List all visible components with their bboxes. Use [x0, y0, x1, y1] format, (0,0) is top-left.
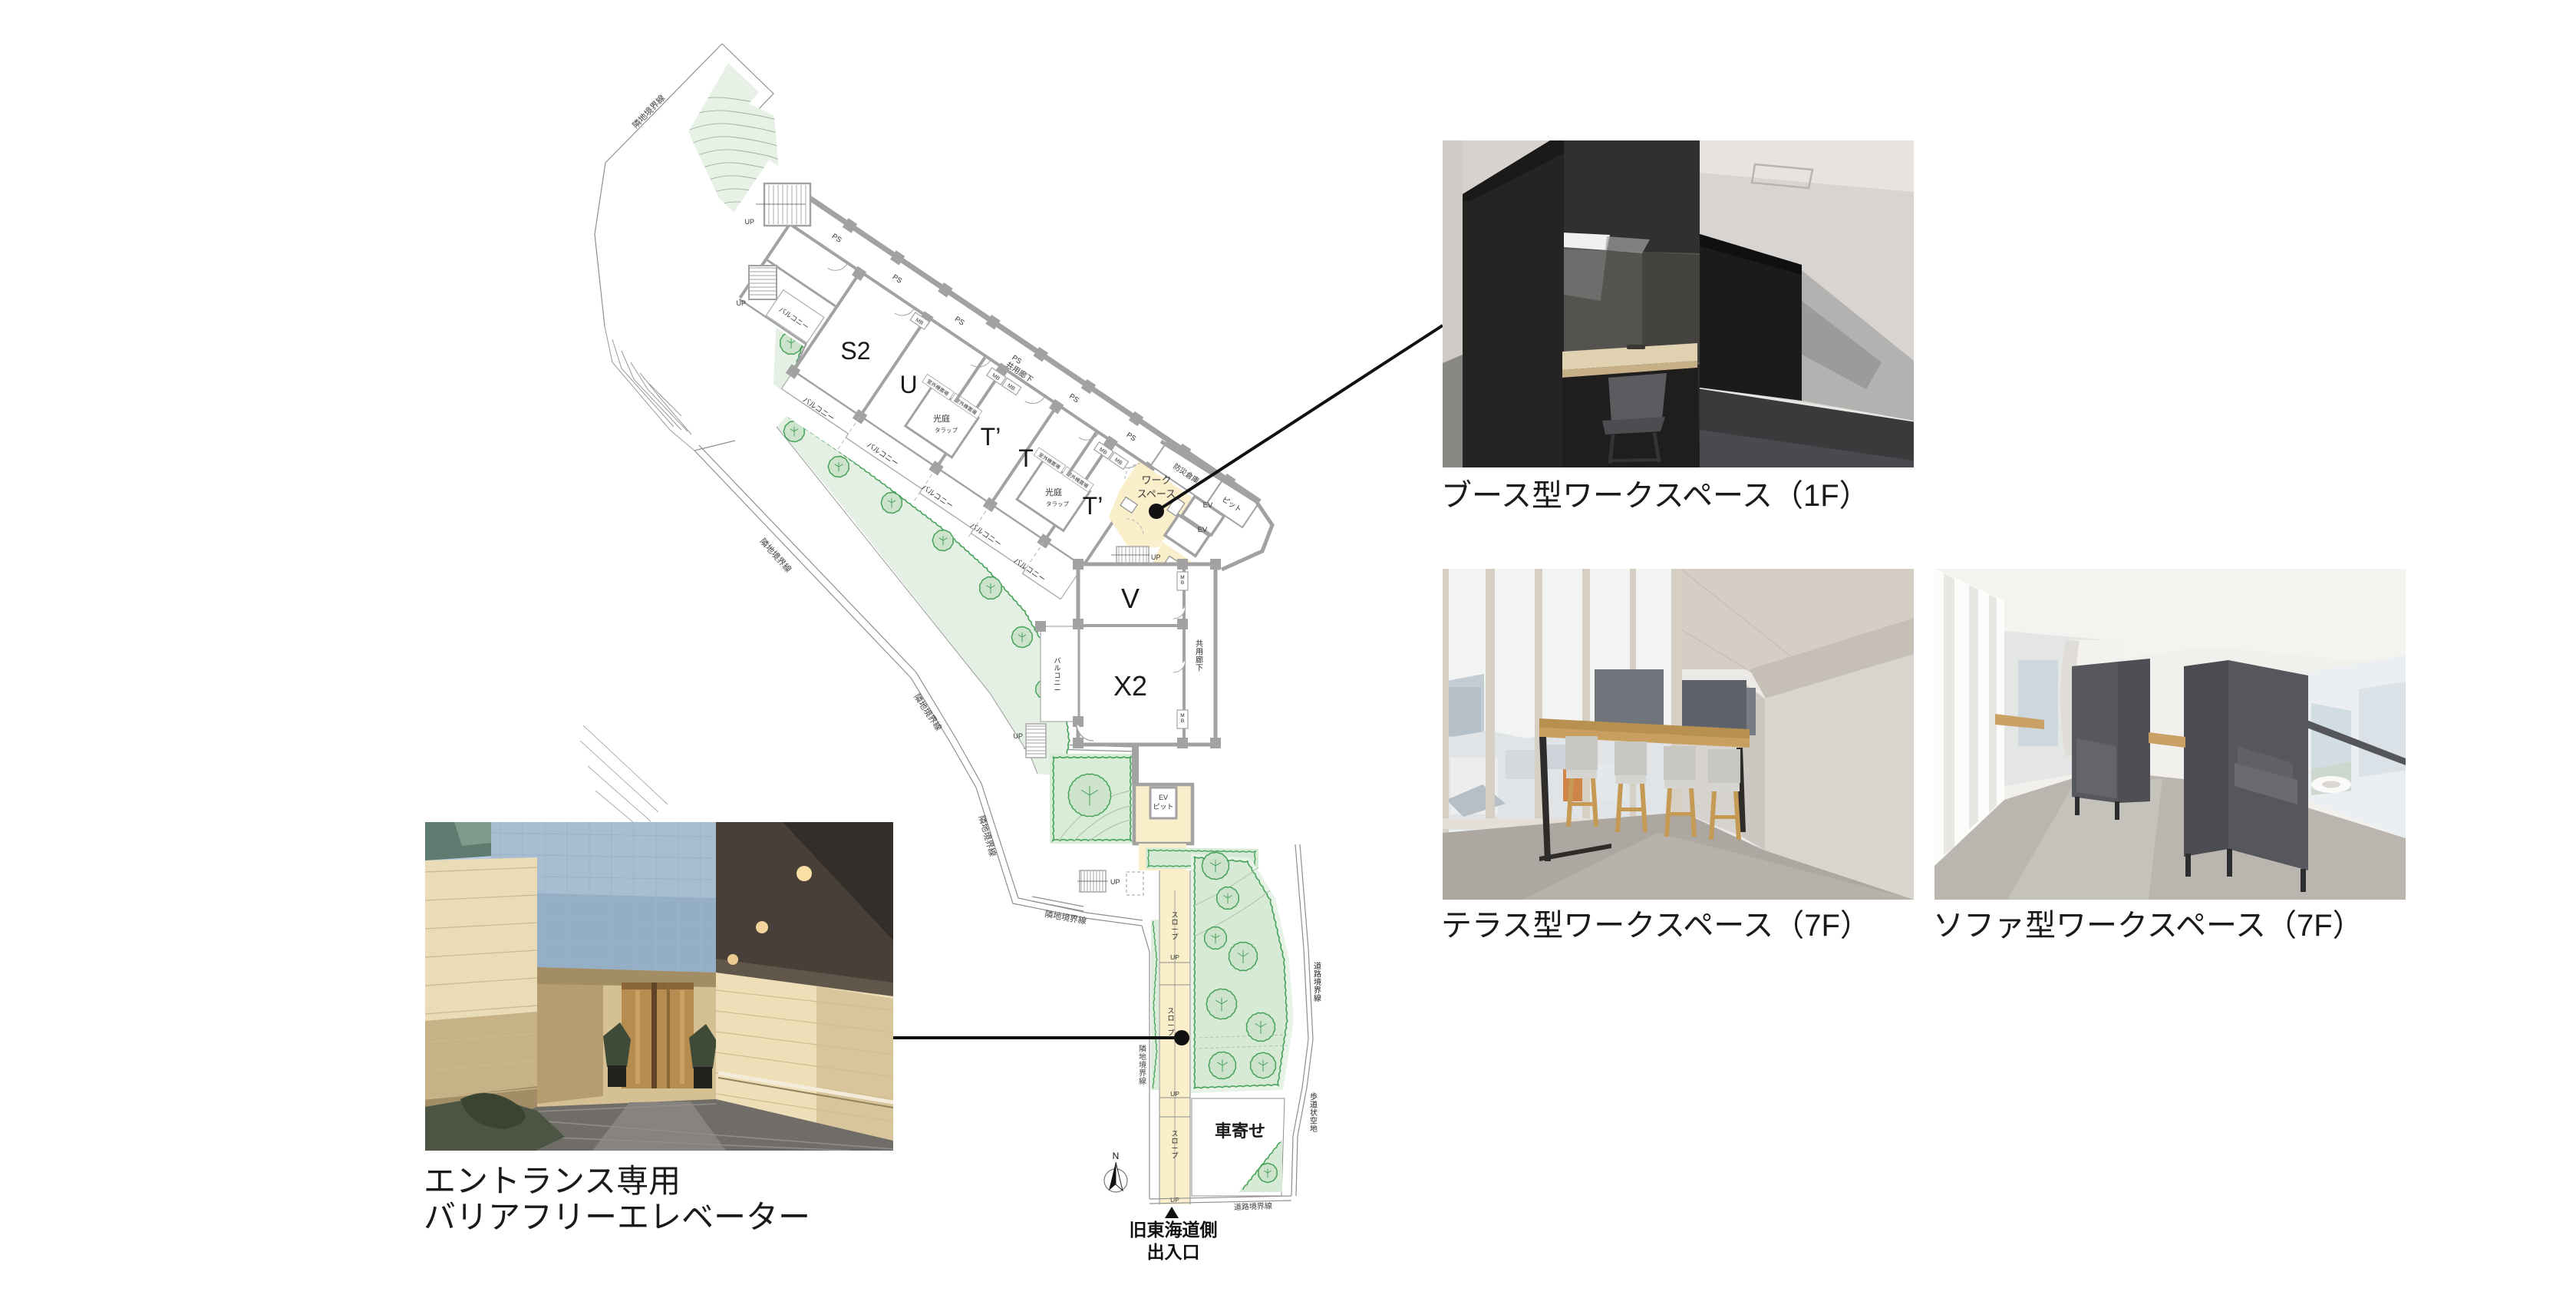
- svg-text:UP: UP: [1151, 553, 1161, 561]
- svg-text:S2: S2: [840, 337, 870, 365]
- svg-text:ピット: ピット: [1153, 803, 1173, 811]
- svg-text:光庭: 光庭: [933, 413, 950, 424]
- svg-text:UP: UP: [1170, 1196, 1179, 1204]
- svg-text:隣地境界線: 隣地境界線: [1139, 1044, 1146, 1086]
- svg-text:EV: EV: [1198, 526, 1208, 534]
- svg-text:スロープ: スロープ: [1167, 1007, 1174, 1036]
- svg-text:タラップ: タラップ: [935, 427, 958, 434]
- svg-text:MB: MB: [1180, 575, 1184, 586]
- svg-text:スロープ: スロープ: [1171, 1130, 1178, 1159]
- svg-text:ワーク: ワーク: [1141, 474, 1171, 486]
- svg-text:共用廊下: 共用廊下: [1196, 639, 1203, 673]
- svg-text:光庭: 光庭: [1045, 487, 1062, 497]
- svg-text:EV: EV: [1203, 501, 1213, 510]
- svg-text:旧東海道側: 旧東海道側: [1130, 1220, 1218, 1240]
- svg-text:T’: T’: [1083, 492, 1103, 520]
- svg-text:UP: UP: [1170, 1090, 1179, 1098]
- svg-text:MB: MB: [1180, 713, 1184, 724]
- svg-text:車寄せ: 車寄せ: [1215, 1121, 1265, 1141]
- svg-text:UP: UP: [1170, 953, 1179, 961]
- svg-text:スペース: スペース: [1137, 488, 1176, 500]
- svg-text:U: U: [899, 371, 917, 398]
- svg-text:V: V: [1121, 583, 1140, 614]
- svg-text:UP: UP: [1110, 878, 1120, 886]
- svg-text:T’: T’: [981, 423, 1001, 451]
- svg-text:歩道状空地: 歩道状空地: [1310, 1092, 1318, 1134]
- svg-text:エントランス専用: エントランス専用: [424, 1163, 681, 1199]
- svg-text:N: N: [1113, 1151, 1120, 1161]
- svg-text:ブース型ワークスペース（1F）: ブース型ワークスペース（1F）: [1441, 479, 1870, 513]
- svg-text:道路境界線: 道路境界線: [1314, 961, 1321, 1003]
- svg-text:X2: X2: [1113, 670, 1147, 702]
- svg-text:UP: UP: [744, 218, 754, 226]
- svg-text:UP: UP: [736, 299, 746, 307]
- svg-text:バルコニー: バルコニー: [1054, 657, 1060, 694]
- svg-text:EV: EV: [1159, 794, 1168, 801]
- svg-text:T: T: [1018, 444, 1034, 472]
- svg-text:ソファ型ワークスペース（7F）: ソファ型ワークスペース（7F）: [1933, 909, 2363, 943]
- svg-text:スロープ: スロープ: [1171, 911, 1178, 940]
- svg-text:出入口: 出入口: [1147, 1242, 1200, 1262]
- svg-text:UP: UP: [1013, 732, 1023, 740]
- svg-text:テラス型ワークスペース（7F）: テラス型ワークスペース（7F）: [1441, 909, 1871, 943]
- svg-text:バリアフリーエレベーター: バリアフリーエレベーター: [424, 1199, 810, 1235]
- svg-text:タラップ: タラップ: [1046, 500, 1069, 507]
